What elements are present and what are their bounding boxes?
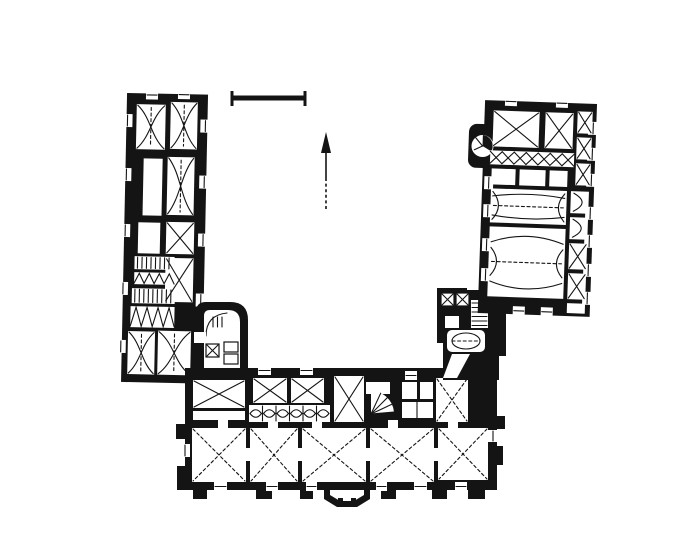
bay-window-mullion — [351, 498, 356, 502]
door-opening — [448, 420, 458, 428]
closet — [224, 354, 238, 364]
buttress — [432, 490, 447, 499]
door-opening — [432, 448, 440, 461]
floorplan-drawing — [0, 0, 700, 554]
buttress — [492, 416, 505, 429]
door-opening — [296, 448, 304, 461]
small-room — [491, 168, 516, 185]
door-opening — [364, 448, 372, 461]
small-room — [549, 170, 568, 187]
door-opening — [244, 448, 252, 461]
buttress — [381, 490, 396, 499]
left-stair-annex — [194, 302, 248, 372]
bay-window-mullion — [338, 498, 343, 502]
closet — [224, 342, 238, 352]
small-room — [519, 169, 546, 186]
small-room — [420, 382, 433, 399]
door-opening — [388, 420, 398, 428]
corridor-bay — [567, 303, 585, 314]
buttress — [488, 446, 503, 465]
door-opening — [194, 332, 206, 343]
right-wing — [463, 96, 600, 318]
small-room — [402, 382, 417, 399]
buttress — [193, 490, 207, 499]
buttress — [176, 424, 187, 439]
central-range — [176, 366, 505, 507]
buttress — [468, 490, 485, 499]
landing — [445, 316, 459, 328]
buttress — [256, 490, 272, 499]
buttress — [300, 490, 313, 499]
door-opening — [218, 420, 228, 428]
room — [143, 158, 163, 215]
room — [138, 222, 161, 253]
corridor — [193, 411, 245, 420]
